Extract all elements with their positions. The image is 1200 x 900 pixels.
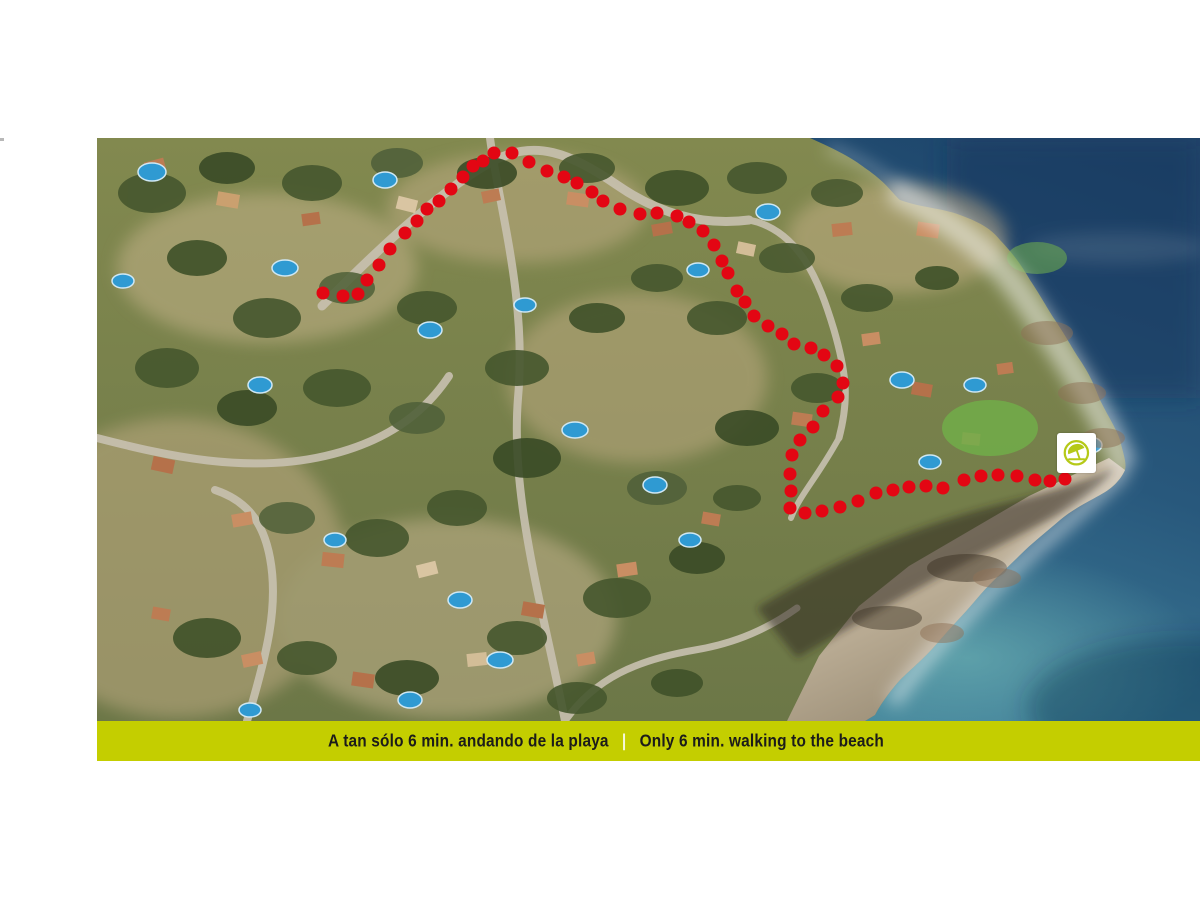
walking-route [97,138,1200,721]
caption-en: Only 6 min. walking to the beach [640,731,884,752]
beach-marker [1057,433,1096,473]
caption-es: A tan sólo 6 min. andando de la playa [328,731,609,752]
flyer-page: A tan sólo 6 min. andando de la playa | … [0,0,1200,900]
caption-divider: | [622,731,626,752]
beach-umbrella-icon [1060,436,1093,470]
aerial-map [97,138,1200,721]
stray-mark [0,138,4,141]
caption-text: A tan sólo 6 min. andando de la playa | … [328,731,884,752]
caption-bar: A tan sólo 6 min. andando de la playa | … [97,721,1200,761]
